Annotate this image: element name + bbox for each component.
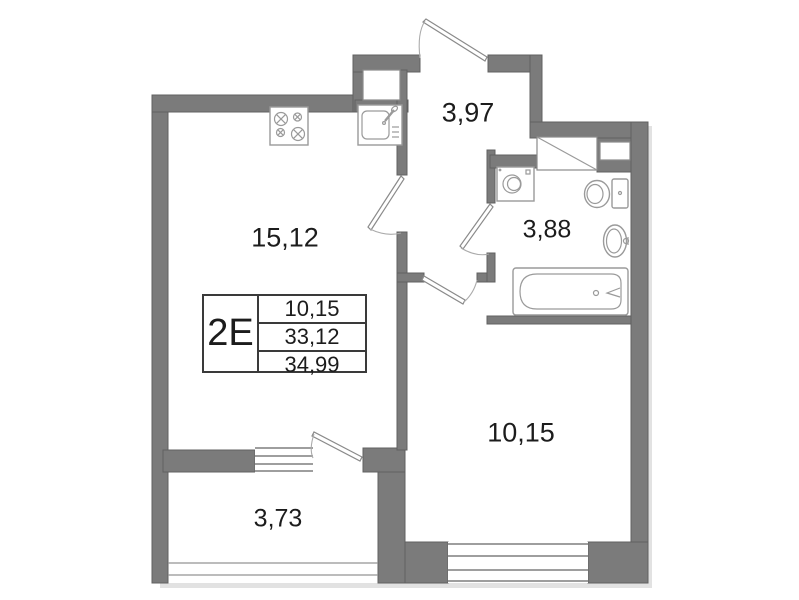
shadow-bottom [160,583,652,588]
floor-plan: 15,12 3,97 3,88 10,15 3,73 2Е 10,15 33,1… [0,0,799,600]
bathroom-wall [487,253,495,282]
bedroom-door [422,276,477,304]
balcony-door [311,432,362,461]
bathtub-icon [513,268,628,315]
exterior-wall-top-right [530,122,648,138]
wall-niche [600,142,630,160]
wall-segment [363,448,405,472]
toilet-icon [585,179,629,208]
room-label-living-kitchen: 15,12 [251,223,319,254]
wall-segment [588,542,648,583]
room-label-hallway: 3,97 [442,98,495,129]
unit-area-row: 10,15 [259,296,365,324]
bathroom-wall [490,155,540,168]
exterior-wall-right [631,122,648,583]
stove-icon [270,107,308,145]
unit-area-row: 33,12 [259,324,365,352]
washbasin-icon [604,225,629,257]
wall-segment [397,273,424,282]
room-label-bedroom: 10,15 [487,418,555,449]
wall-segment [400,542,448,583]
exterior-wall-left [152,95,168,583]
living-bedroom-wall [397,232,407,450]
unit-area-row: 34,99 [259,352,365,378]
window-glass [255,446,313,473]
unit-type-label: 2Е [204,296,259,371]
room-label-bathroom: 3,88 [523,216,572,245]
exterior-wall-top [152,95,363,112]
duct-shaft [363,70,400,100]
bedroom-window [448,542,588,583]
bathroom-door [460,204,493,255]
window-glass [448,542,588,583]
bathroom-bedroom-wall [487,316,631,324]
entrance-door [419,19,487,61]
living-room-door [368,176,404,234]
washing-machine-icon [497,167,534,201]
balcony-window [255,446,313,473]
wall-segment [163,450,255,472]
room-label-balcony: 3,73 [254,505,303,534]
unit-info-table: 2Е 10,15 33,12 34,99 [202,294,367,373]
balcony-railing [168,563,378,575]
shadow-right [648,126,652,588]
floor-plan-drawing [0,0,799,600]
kitchen-sink-icon [358,105,402,145]
unit-area-column: 10,15 33,12 34,99 [259,296,365,371]
